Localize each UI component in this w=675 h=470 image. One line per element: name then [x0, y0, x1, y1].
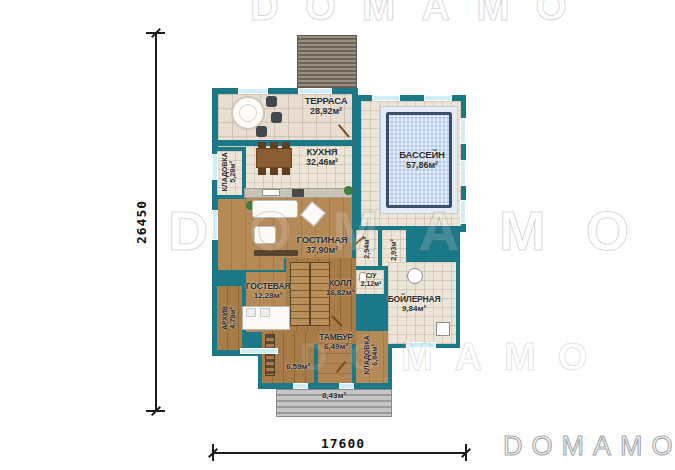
domamo-logo: DOMAMO — [503, 431, 675, 462]
floor-plan-page: 26450 17600 — [0, 0, 675, 470]
room-label-storage-small: 6,59м² — [286, 363, 310, 372]
window — [460, 118, 466, 144]
window — [212, 154, 218, 180]
washing-machine — [436, 322, 450, 336]
window — [238, 88, 268, 94]
window — [293, 383, 308, 389]
room-label-archive: АРХИВ 4,79м² — [221, 306, 237, 330]
armchair — [254, 226, 276, 244]
window — [298, 88, 332, 94]
window — [212, 210, 218, 240]
window — [424, 95, 452, 101]
room-label-vestibule: ТАМБУР 6,49м² — [319, 333, 353, 351]
room-label-porch: 8,43м² — [322, 392, 346, 401]
dining-chair — [270, 168, 278, 175]
room-label-terrace: ТЕРРАСА 28,92м² — [305, 96, 348, 117]
shelving — [265, 334, 275, 376]
room-label-hall: ХОЛЛ 16,82м² — [326, 279, 355, 297]
kitchen-stove — [292, 189, 304, 197]
window — [240, 348, 278, 354]
dining-chair — [282, 168, 290, 175]
plant — [344, 186, 353, 195]
dimension-vertical-value: 26450 — [134, 200, 149, 244]
terrace-chair — [256, 126, 267, 137]
window — [372, 95, 400, 101]
room-label-pool: БАССЕЙН 57,86м² — [399, 150, 444, 171]
tv-unit — [254, 250, 298, 256]
dimension-horizontal-value: 17600 — [321, 436, 365, 451]
dining-chair — [258, 142, 266, 149]
room-label-living: ГОСТИНАЯ 37,90м² — [297, 235, 348, 256]
dimension-horizontal-line — [213, 452, 467, 454]
window — [460, 160, 466, 186]
window — [460, 200, 466, 224]
bed-pillow — [246, 308, 256, 317]
room-label-pantry-rear: КЛАДОВКА 6,84м² — [363, 336, 379, 375]
dining-chair — [270, 142, 278, 149]
sofa — [252, 200, 298, 218]
terrace-chair — [266, 96, 277, 107]
watermark-text: DOMAMO — [250, 0, 593, 29]
bed-pillow — [260, 308, 270, 317]
terrace-table-inner — [239, 104, 257, 122]
room-label-bathroom: С/У 2,12м² — [361, 272, 382, 287]
window — [406, 342, 436, 348]
room-label-corridor-a: 2,94м² — [363, 237, 371, 259]
terrace-chair — [271, 112, 282, 123]
room-living-floor-ext — [218, 258, 284, 270]
dimension-vertical-line — [155, 33, 157, 412]
dining-chair — [282, 142, 290, 149]
deck-stripes — [297, 35, 357, 88]
room-label-boiler: БОЙЛЕРНАЯ 9,84м² — [388, 295, 441, 313]
boiler — [407, 268, 423, 284]
room-label-pantry-kitchen: КЛАДОВКА 5,28м² — [221, 153, 237, 192]
room-label-corridor-b: 2,93м² — [390, 239, 398, 261]
dining-chair — [258, 168, 266, 175]
room-label-kitchen: КУХНЯ 32,46м² — [306, 147, 338, 168]
kitchen-sink — [262, 189, 280, 196]
dining-table — [256, 148, 292, 168]
window — [339, 383, 354, 389]
stairs-rail — [309, 262, 311, 326]
room-label-guest: ГОСТЕВАЯ 12,28м² — [246, 282, 290, 300]
